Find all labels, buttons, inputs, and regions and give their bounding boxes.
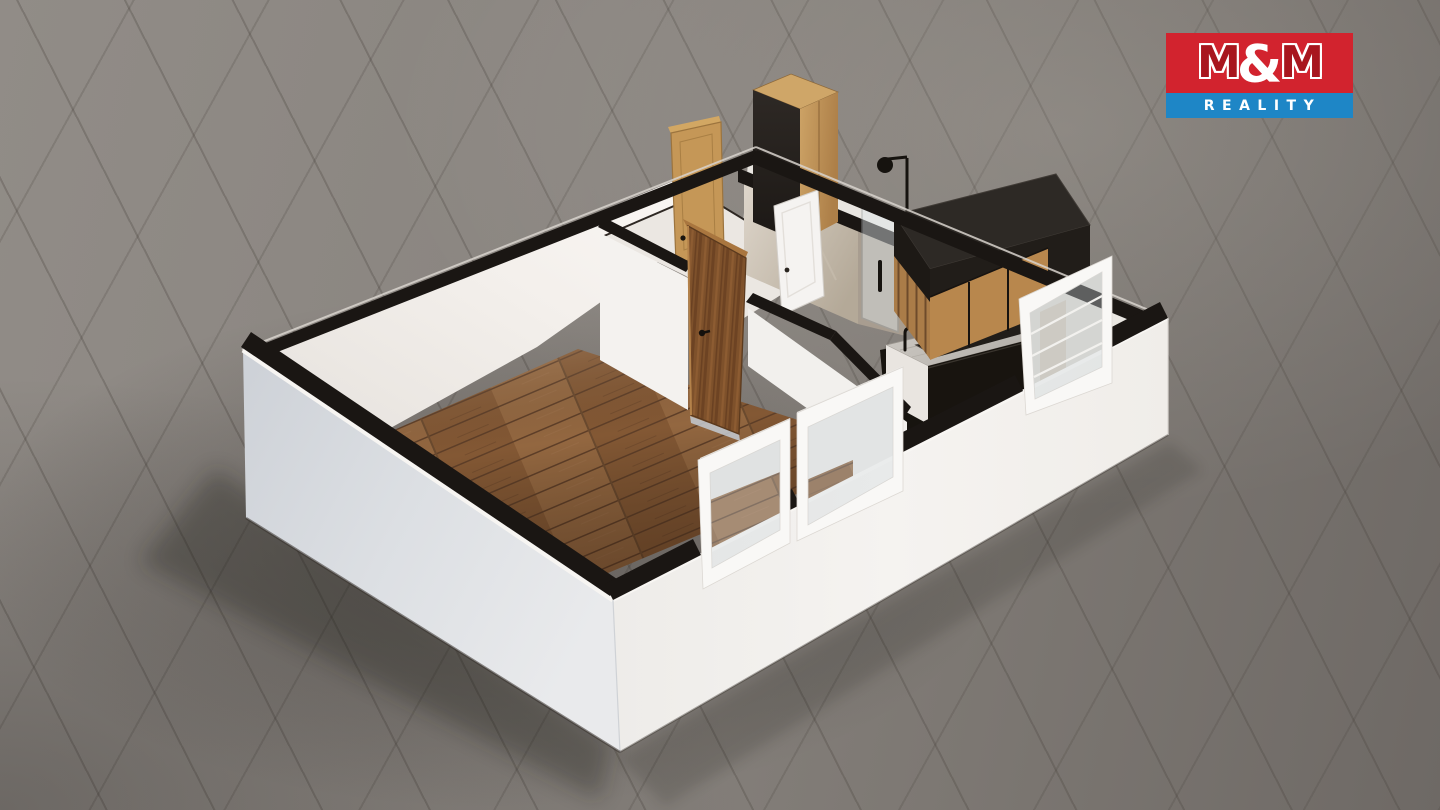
bathroom-door-handle: [785, 268, 790, 273]
living-room-door: [683, 219, 748, 441]
shower-head: [877, 157, 893, 173]
logo-letter-m: M: [1197, 41, 1239, 85]
logo-subtitle: REALITY: [1166, 93, 1353, 118]
scene: M & M REALITY: [0, 0, 1440, 810]
logo-mm-block: M & M: [1166, 33, 1353, 93]
bathroom-door: [774, 190, 824, 315]
shower-arm: [888, 157, 907, 159]
logo-letter-m: M: [1280, 41, 1322, 85]
entry-door-handle: [680, 235, 685, 240]
brand-logo: M & M REALITY: [1166, 33, 1353, 118]
logo-ampersand: &: [1237, 39, 1282, 91]
door-leaf-walnut: [688, 226, 746, 434]
bathroom-door-leaf: [774, 190, 824, 315]
floorplan-3d-render: [0, 0, 1440, 810]
